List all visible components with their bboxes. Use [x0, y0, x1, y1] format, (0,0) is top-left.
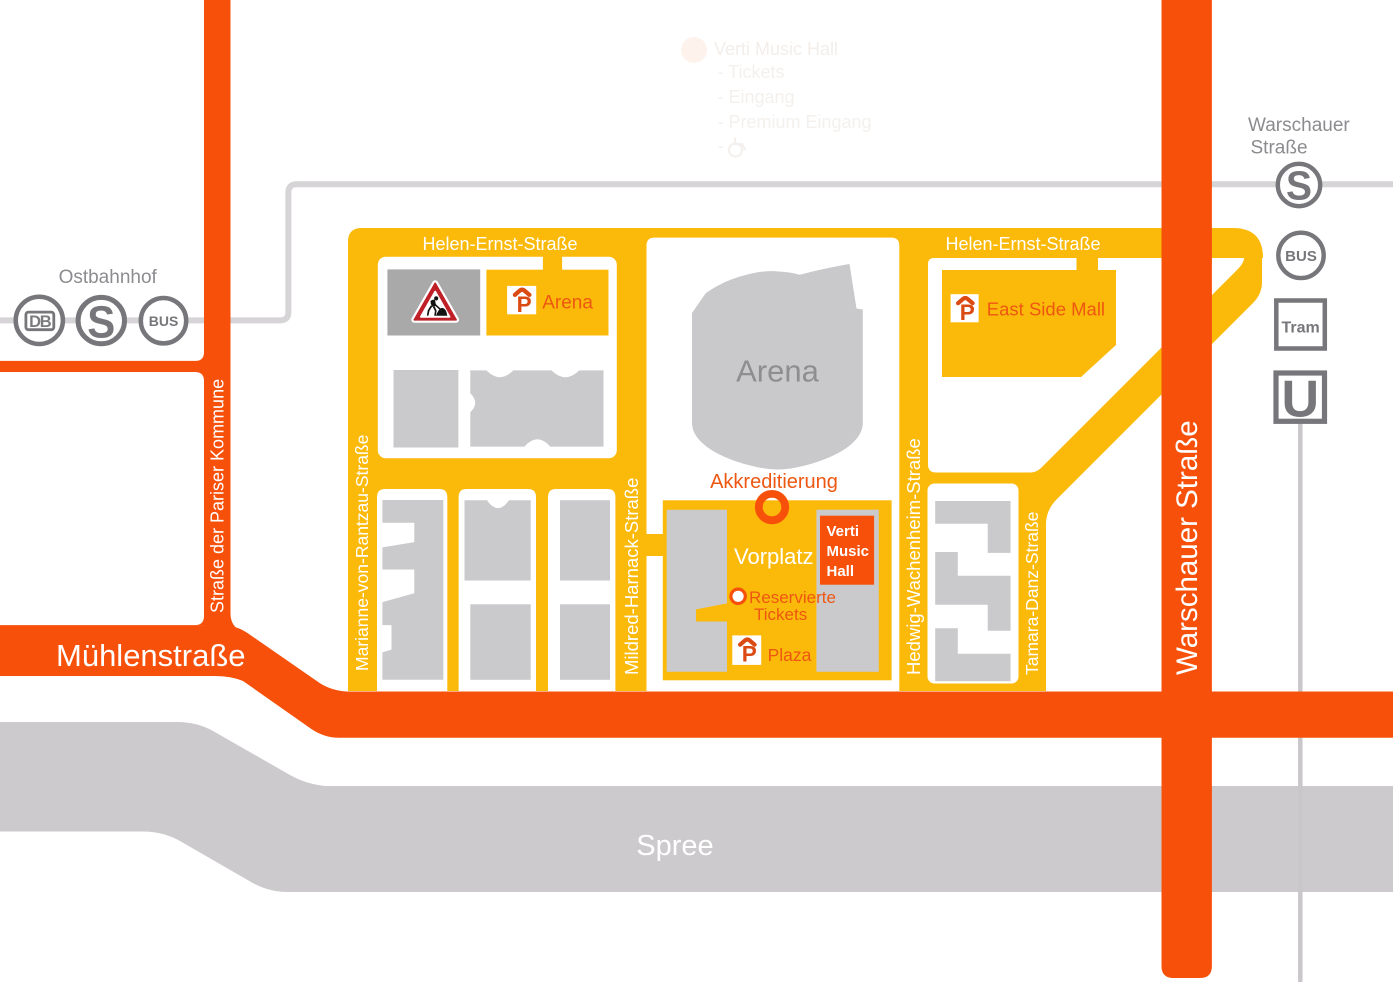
svg-text:Warschauer: Warschauer — [1248, 115, 1350, 136]
svg-text:Tram: Tram — [1281, 320, 1319, 337]
svg-text:DB: DB — [29, 313, 52, 331]
svg-text:Tickets: Tickets — [754, 605, 807, 624]
svg-text:- Eingang: - Eingang — [718, 87, 795, 107]
svg-text:Vorplatz: Vorplatz — [734, 544, 814, 569]
svg-text:Helen-Ernst-Straße: Helen-Ernst-Straße — [945, 234, 1100, 254]
svg-text:Helen-Ernst-Straße: Helen-Ernst-Straße — [422, 234, 577, 254]
svg-text:Arena: Arena — [542, 292, 593, 313]
svg-text:Mühlenstraße: Mühlenstraße — [56, 638, 246, 673]
svg-text:Plaza: Plaza — [768, 645, 812, 665]
svg-text:Straße: Straße — [1251, 138, 1308, 159]
svg-text:Verti Music Hall: Verti Music Hall — [714, 39, 838, 59]
svg-text:Warschauer Straße: Warschauer Straße — [1171, 420, 1204, 675]
svg-text:Hall: Hall — [827, 563, 855, 580]
svg-text:Spree: Spree — [636, 830, 713, 862]
svg-text:BUS: BUS — [1285, 248, 1317, 265]
svg-text:Straße der Pariser Kommune: Straße der Pariser Kommune — [208, 379, 228, 613]
svg-text:-: - — [718, 136, 724, 156]
svg-text:Tamara-Danz-Straße: Tamara-Danz-Straße — [1022, 512, 1042, 675]
svg-text:S: S — [87, 296, 115, 347]
svg-text:U: U — [1282, 371, 1320, 429]
svg-text:Akkreditierung: Akkreditierung — [710, 471, 838, 493]
svg-text:Music: Music — [827, 543, 870, 560]
svg-text:Ostbahnhof: Ostbahnhof — [59, 267, 158, 288]
svg-text:- Premium Eingang: - Premium Eingang — [718, 112, 872, 132]
svg-text:Verti: Verti — [827, 523, 860, 540]
svg-text:Mildred-Harnack-Straße: Mildred-Harnack-Straße — [621, 478, 642, 675]
svg-text:Arena: Arena — [736, 354, 819, 389]
svg-text:- Tickets: - Tickets — [718, 62, 785, 82]
svg-text:East Side Mall: East Side Mall — [987, 299, 1105, 320]
svg-text:BUS: BUS — [149, 313, 179, 329]
svg-text:Marianne-von-Rantzau-Straße: Marianne-von-Rantzau-Straße — [352, 435, 372, 671]
svg-text:S: S — [1286, 163, 1312, 209]
svg-text:Hedwig-Wachenheim-Straße: Hedwig-Wachenheim-Straße — [903, 438, 924, 675]
